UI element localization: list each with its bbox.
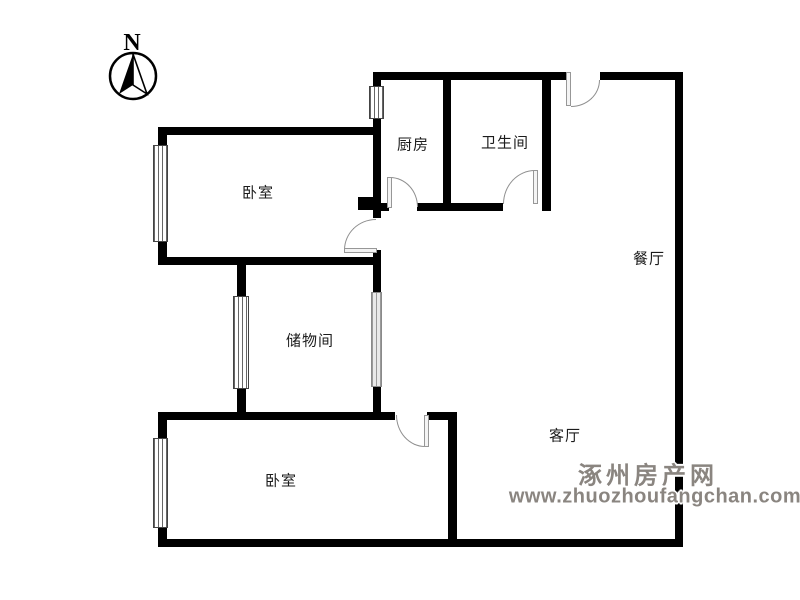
room-label-bedroom-bottom: 卧室: [265, 470, 297, 491]
compass-needle-right: [133, 54, 147, 94]
room-label-dining: 餐厅: [633, 248, 665, 269]
door-leaf-bedroom-top: [344, 248, 377, 253]
wall-shared-vertical-lower: [373, 385, 381, 420]
window-kitchen: [369, 86, 384, 119]
door-arc-bathroom: [503, 170, 535, 204]
wall-bedroom-bottom-right: [448, 412, 457, 547]
compass-north-icon: N: [102, 24, 164, 106]
room-label-storage: 储物间: [286, 330, 334, 351]
wall-bedroom-top-top: [158, 127, 381, 135]
room-label-bathroom: 卫生间: [481, 132, 529, 153]
wall-bedroom-bottom-top-a: [158, 412, 395, 420]
window-bedroom-bottom: [153, 438, 168, 528]
floor-plan: N 卧室 厨房: [0, 0, 800, 600]
room-label-living: 客厅: [549, 425, 581, 446]
door-leaf-bedroom-bottom: [424, 415, 429, 447]
door-leaf-kitchen: [387, 177, 392, 208]
sliding-door-storage: [371, 292, 382, 387]
wall-bathroom-right: [542, 72, 551, 211]
room-label-kitchen: 厨房: [397, 134, 429, 155]
room-label-bedroom-top: 卧室: [242, 182, 274, 203]
wall-kitchen-bath-bottom: [417, 203, 503, 211]
door-arc-kitchen: [390, 177, 418, 207]
window-storage: [233, 296, 249, 389]
wall-stub-column: [358, 197, 381, 210]
wall-top-right-segment: [600, 72, 683, 80]
wall-top-left-segment: [373, 72, 568, 80]
wall-bedroom-top-bottom: [158, 257, 381, 265]
door-leaf-bathroom: [533, 170, 538, 204]
compass-needle-left: [119, 54, 133, 94]
wall-bottom-outer: [158, 539, 683, 547]
window-bedroom-top: [153, 145, 168, 242]
door-arc-bedroom-bottom: [396, 415, 425, 447]
door-arc-entrance: [571, 80, 600, 107]
watermark-url: www.zhuozhoufangchan.com: [509, 486, 800, 509]
door-arc-bedroom-top: [344, 219, 376, 250]
wall-kitchen-bath-divider: [443, 72, 451, 211]
wall-shared-vertical-middle: [373, 250, 381, 295]
door-leaf-entrance: [566, 72, 571, 106]
